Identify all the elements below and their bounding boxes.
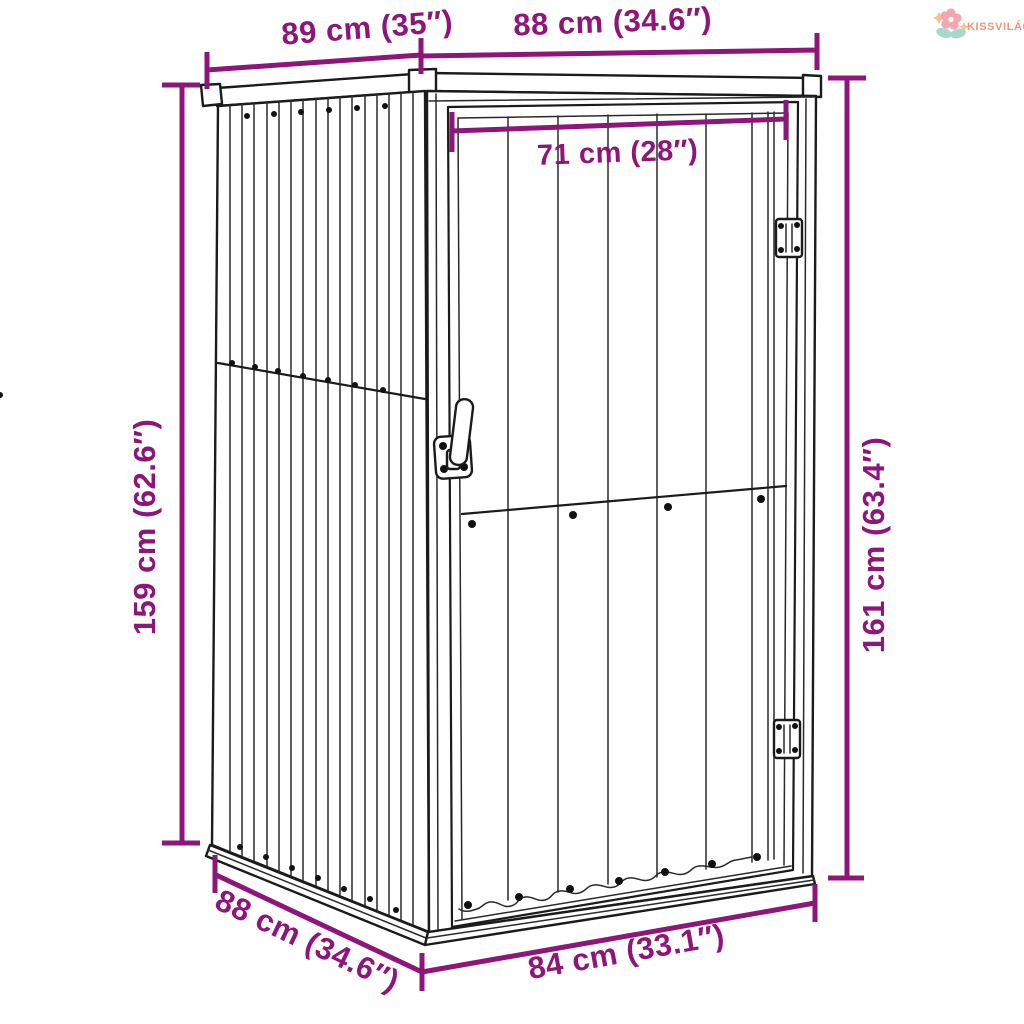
dim-label-roof-width: 88 cm (34.6″): [513, 1, 713, 43]
shed-side-wall: [0, 91, 429, 932]
dim-label-height-front: 161 cm (63.4″): [856, 437, 891, 654]
door-hinge-top-icon: [776, 219, 802, 257]
logo-text: KISSVILÁG: [967, 20, 1024, 33]
dim-label-door-width: 71 cm (28″): [537, 134, 699, 172]
product-dimension-diagram: 89 cm (35″) 88 cm (34.6″) 71 cm (28″) 15…: [0, 0, 1024, 1024]
door-hinge-bottom-icon: [774, 720, 800, 758]
dim-roof-width: 88 cm (34.6″): [421, 1, 817, 70]
dim-height-back: 159 cm (62.6″): [127, 85, 200, 843]
shed-diagram-svg: 89 cm (35″) 88 cm (34.6″) 71 cm (28″) 15…: [0, 0, 1024, 1024]
flower-icon: [933, 8, 969, 39]
shed-drawing: [0, 69, 821, 945]
dim-label-base-width: 84 cm (33.1″): [525, 917, 727, 986]
dim-label-height-back: 159 cm (62.6″): [127, 419, 162, 636]
dim-height-front: 161 cm (63.4″): [828, 78, 891, 878]
dim-label-roof-depth: 89 cm (35″): [280, 3, 454, 51]
logo: KISSVILÁG: [933, 8, 1024, 39]
